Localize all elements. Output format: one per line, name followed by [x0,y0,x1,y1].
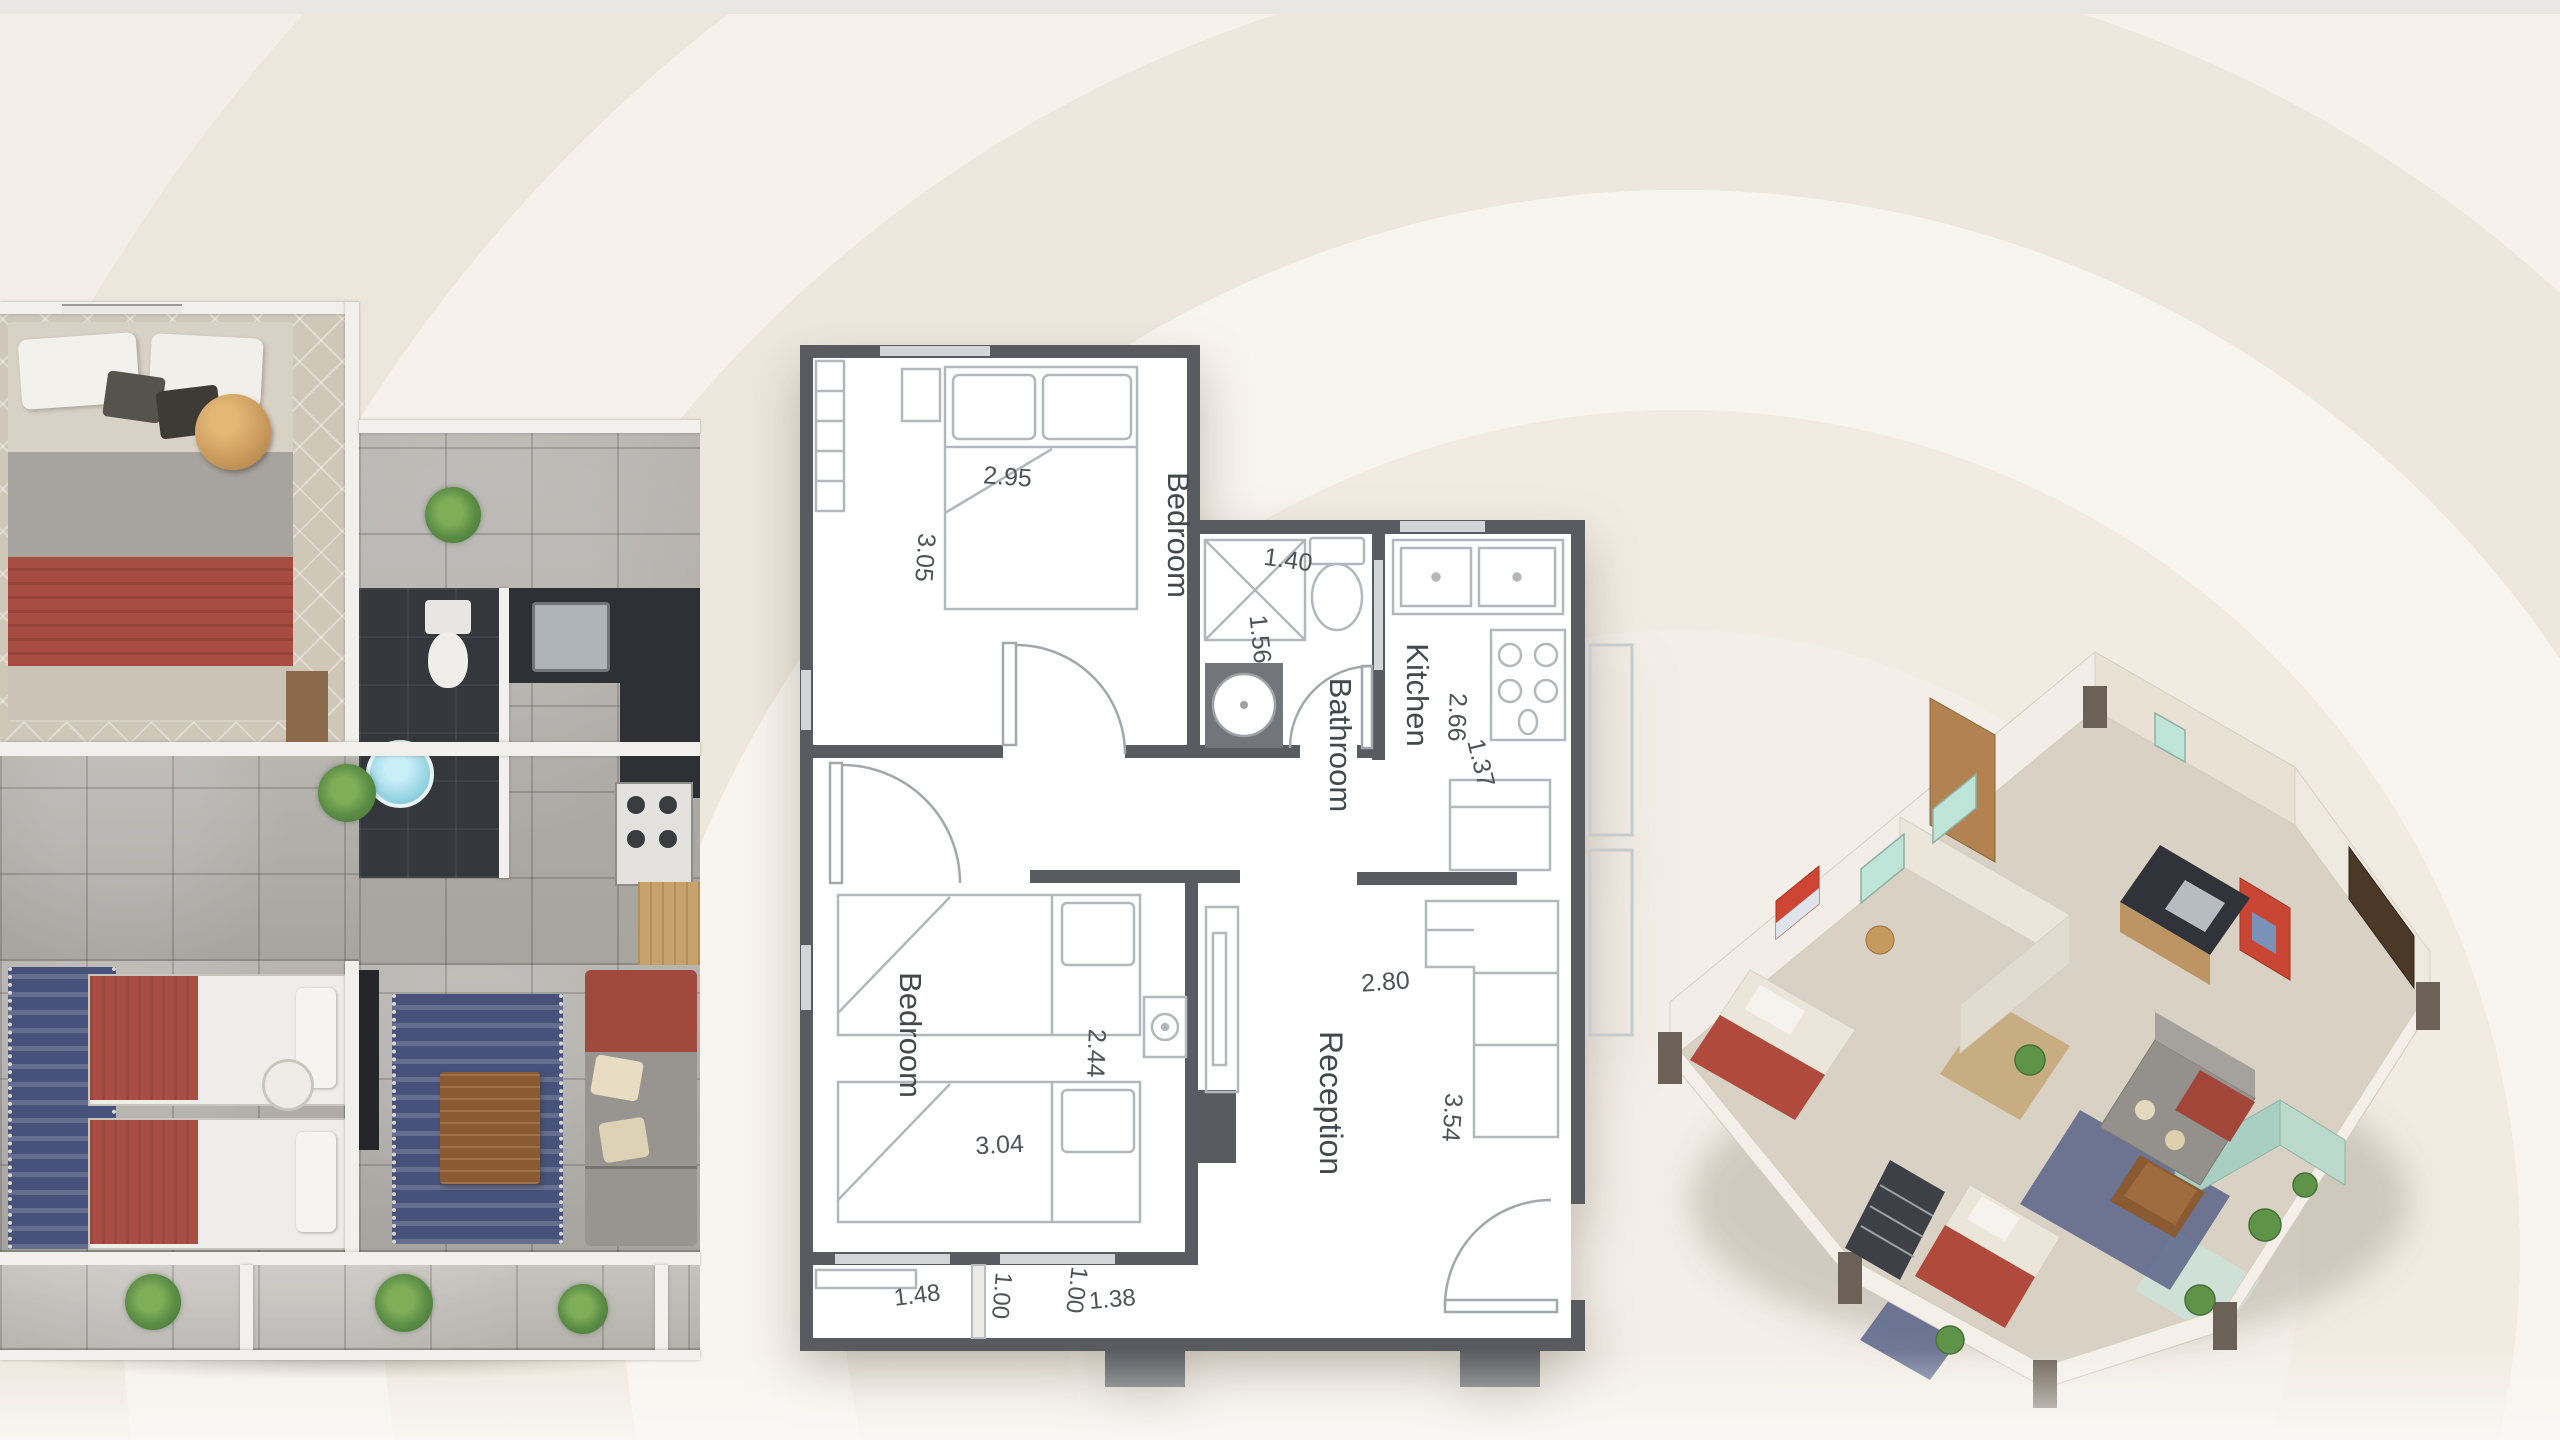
bottom-fade [0,1350,2560,1440]
lp-hall-floor [0,756,359,961]
dim-reception-height: 3.54 [1436,1092,1467,1143]
lp-red-blanket [90,1120,198,1244]
lp-toilet [425,600,471,634]
lp-burner [627,830,645,848]
lp-balcony-divider [655,1265,668,1350]
lp-wall [499,588,509,878]
lp-side-table [286,671,328,742]
dim-balcony-4: 1.38 [1088,1284,1137,1315]
lp-kitchen-counter [620,588,700,798]
reception-label: Reception [1313,1031,1349,1175]
lp-balcony-divider [240,1265,253,1350]
door-leaf [1003,643,1016,745]
lp-round-table [195,394,271,470]
top-strip [0,0,2560,14]
door-leaf [1362,666,1372,748]
bath-sink-drain [1240,701,1248,709]
lp-wall [0,1252,700,1265]
bedroom2-label: Bedroom [893,972,928,1098]
lp-sofa-cushion [598,1117,650,1164]
door-leaf [830,763,842,883]
lp-wall [359,420,700,433]
iso-round-table [1866,926,1894,954]
lp-stove [615,782,693,886]
lp-kitchen-sink [532,602,610,672]
dim-bedroom2-height: 2.44 [1081,1028,1111,1078]
lp-plant [425,487,481,543]
balcony-divider [972,1265,985,1338]
lp-sofa-cushion [590,1054,644,1102]
lp-wall [0,742,700,756]
right-isometric-render [1600,640,2480,1440]
floorplan-brochure-page: Bedroom Bathroom Kitchen Bedroom Recepti… [0,0,2560,1440]
lp-plant [125,1274,181,1330]
bathroom-label: Bathroom [1323,678,1358,812]
lp-wood-cabinet [638,882,700,967]
dim-bedroom1-height: 3.05 [909,532,940,583]
lp-coffee-table [440,1072,540,1184]
lp-sofa-red-throw [585,970,697,1052]
lp-wall [345,302,359,742]
lp-plant [318,764,376,822]
lp-wall [345,961,359,1252]
lp-twin-bed-2 [88,1118,349,1250]
dim-balcony-1: 1.48 [892,1279,942,1311]
lp-burner [659,796,677,814]
lp-burner [659,830,677,848]
lp-window [62,304,182,313]
lp-stool [262,1059,314,1111]
dim-kitchen-depth: 2.66 [1442,692,1472,742]
lp-tv-console [359,970,379,1150]
lp-sofa-seat-line [585,1166,697,1169]
dim-balcony-2: 1.00 [986,1271,1017,1320]
bedroom1-label: Bedroom [1161,472,1196,598]
dim-bedroom2-width: 3.04 [975,1130,1025,1161]
lp-red-blanket [90,976,198,1100]
entrance-door-leaf [1445,1300,1557,1312]
left-rendered-floorplan [0,302,700,1362]
lp-plant [375,1274,433,1332]
dim-bathroom-height: 1.56 [1243,613,1276,664]
lp-burner [627,796,645,814]
dim-reception-width: 2.80 [1360,966,1411,997]
dim-bedroom1-width: 2.95 [982,461,1033,492]
center-2d-floorplan: Bedroom Bathroom Kitchen Bedroom Recepti… [800,345,1650,1395]
lp-pillow [296,1132,336,1232]
lp-plant [558,1284,608,1334]
lp-toilet-bowl [428,632,468,688]
lp-bed-sheet [8,452,293,562]
lp-red-blanket [8,557,293,669]
kitchen-label: Kitchen [1400,643,1435,746]
lp-sofa [585,970,697,1246]
lp-bed-foot [8,666,293,720]
